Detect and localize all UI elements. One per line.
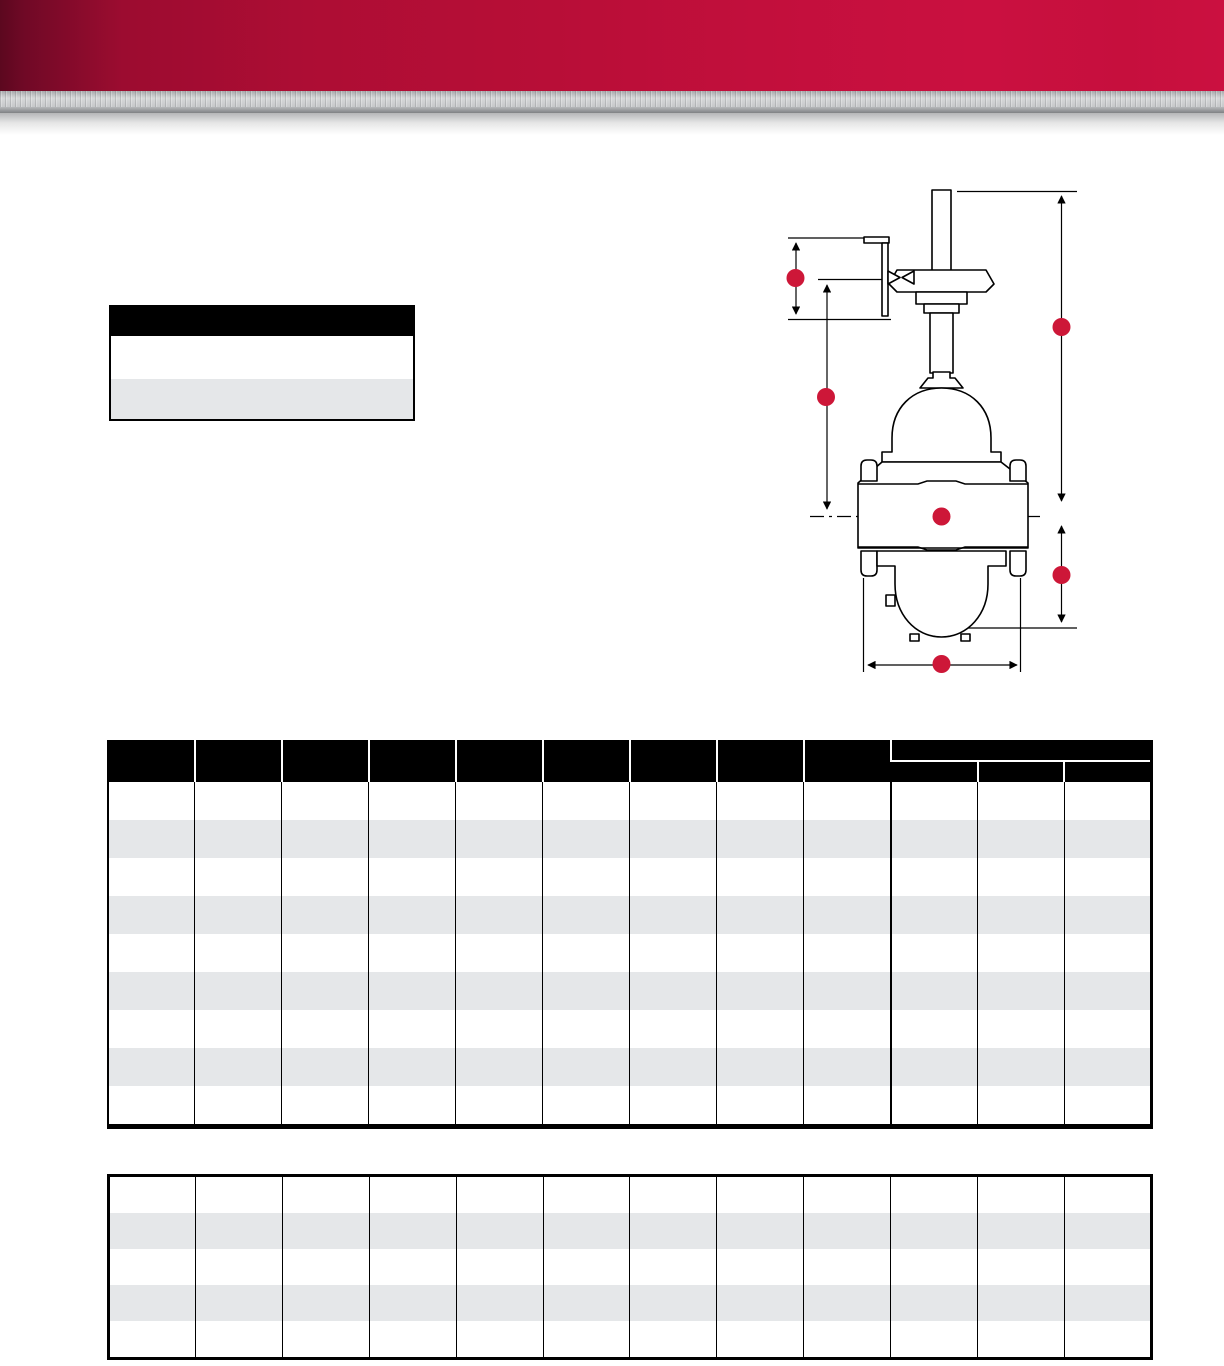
- table-cell: [630, 1048, 717, 1086]
- table-cell: [195, 1321, 282, 1359]
- table-cell: [195, 972, 282, 1010]
- table-cell: [195, 1010, 282, 1048]
- table-cell: [630, 1086, 717, 1127]
- table-cell: [891, 820, 978, 858]
- table-cell: [195, 782, 282, 820]
- table-cell: [978, 1321, 1065, 1359]
- table-cell: [456, 1176, 543, 1214]
- table-cell: [543, 1321, 630, 1359]
- dimension-callout-marker: [933, 508, 951, 526]
- table-cell: [717, 972, 804, 1010]
- table-cell: [195, 934, 282, 972]
- table-row: [108, 1010, 1152, 1048]
- table-cell: [282, 1249, 369, 1285]
- valve-dimension-diagram: [760, 180, 1090, 690]
- table-cell: [369, 1176, 456, 1214]
- table-cell: [543, 1086, 630, 1127]
- table-cell: [369, 934, 456, 972]
- table-cell: [630, 1010, 717, 1048]
- table-cell: [630, 934, 717, 972]
- dimension-callout-marker: [787, 269, 805, 287]
- table-cell: [543, 858, 630, 896]
- column-header: [630, 740, 717, 782]
- table-cell: [456, 972, 543, 1010]
- table-cell: [891, 972, 978, 1010]
- dimension-callout-marker: [817, 388, 835, 406]
- table-cell: [543, 820, 630, 858]
- table-cell: [804, 1010, 891, 1048]
- table-cell: [195, 1213, 282, 1249]
- table-cell: [804, 1213, 891, 1249]
- table-cell: [1064, 820, 1151, 858]
- column-header: [195, 740, 282, 782]
- table-cell: [109, 1213, 196, 1249]
- table-cell: [804, 1086, 891, 1127]
- table-cell: [717, 1048, 804, 1086]
- table-cell: [804, 934, 891, 972]
- table-cell: [717, 934, 804, 972]
- table-cell: [282, 1086, 369, 1127]
- column-header: [717, 740, 804, 782]
- dimension-callout-marker: [1053, 566, 1071, 584]
- sub-column-header: [891, 761, 978, 782]
- table-cell: [108, 934, 195, 972]
- table-cell: [978, 1249, 1065, 1285]
- table-cell: [369, 1048, 456, 1086]
- table-row: [108, 934, 1152, 972]
- table-cell: [543, 934, 630, 972]
- table-cell: [543, 1285, 630, 1321]
- table-cell: [282, 858, 369, 896]
- table-cell: [282, 1048, 369, 1086]
- table-cell: [978, 1086, 1065, 1127]
- table-cell: [369, 858, 456, 896]
- table-cell: [1064, 782, 1151, 820]
- table-cell: [891, 1213, 978, 1249]
- table-cell: [1064, 1086, 1151, 1127]
- dimension-callout-marker: [1053, 318, 1071, 336]
- table-row: [108, 1086, 1152, 1127]
- table-cell: [717, 896, 804, 934]
- catalog-page: [0, 0, 1224, 1366]
- table-cell: [1064, 1249, 1151, 1285]
- table-row: [109, 1285, 1152, 1321]
- table-cell: [978, 858, 1065, 896]
- table-cell: [717, 1010, 804, 1048]
- table-cell: [630, 782, 717, 820]
- table-cell: [543, 896, 630, 934]
- table-cell: [1064, 1213, 1151, 1249]
- table-cell: [109, 1176, 196, 1214]
- data-table: [107, 740, 1153, 1129]
- table-cell: [543, 1213, 630, 1249]
- table-cell: [804, 820, 891, 858]
- column-header: [543, 740, 630, 782]
- table-cell: [804, 1048, 891, 1086]
- table-cell: [630, 1213, 717, 1249]
- table-row: [109, 1249, 1152, 1285]
- table-cell: [282, 896, 369, 934]
- table-cell: [108, 1048, 195, 1086]
- table-cell: [108, 1086, 195, 1127]
- table-cell: [195, 1285, 282, 1321]
- table-cell: [717, 820, 804, 858]
- table-cell: [891, 1321, 978, 1359]
- table-cell: [195, 1249, 282, 1285]
- table-cell: [717, 1086, 804, 1127]
- table-cell: [630, 858, 717, 896]
- table-cell: [195, 1048, 282, 1086]
- table-cell: [891, 858, 978, 896]
- table-row: [108, 972, 1152, 1010]
- table-cell: [891, 1086, 978, 1127]
- table-cell: [717, 1213, 804, 1249]
- dimensions-table: [107, 740, 1153, 1129]
- column-header: [282, 740, 369, 782]
- table-cell: [1064, 1176, 1151, 1214]
- table-cell: [109, 1321, 196, 1359]
- table-cell: [282, 972, 369, 1010]
- table-cell: [630, 1321, 717, 1359]
- table-cell: [456, 1048, 543, 1086]
- table-row: [109, 1176, 1152, 1214]
- table-cell: [195, 896, 282, 934]
- table-cell: [978, 1010, 1065, 1048]
- table-cell: [804, 1249, 891, 1285]
- group-column-header: [891, 740, 1152, 761]
- table-cell: [369, 782, 456, 820]
- table-cell: [978, 896, 1065, 934]
- table-cell: [543, 1010, 630, 1048]
- table-cell: [543, 782, 630, 820]
- table-cell: [109, 1285, 196, 1321]
- table-cell: [978, 972, 1065, 1010]
- table-cell: [369, 820, 456, 858]
- table-cell: [891, 934, 978, 972]
- table-cell: [369, 1285, 456, 1321]
- table-cell: [543, 1048, 630, 1086]
- table-cell: [1064, 1010, 1151, 1048]
- table-cell: [543, 1249, 630, 1285]
- table-cell: [195, 858, 282, 896]
- table-cell: [717, 1321, 804, 1359]
- table-cell: [804, 972, 891, 1010]
- table-cell: [456, 820, 543, 858]
- data-table: [107, 1174, 1153, 1360]
- column-header: [456, 740, 543, 782]
- table-cell: [369, 1249, 456, 1285]
- table-cell: [630, 1176, 717, 1214]
- table-row: [109, 1213, 1152, 1249]
- table-cell: [978, 782, 1065, 820]
- secondary-dimensions-table: [107, 1174, 1153, 1360]
- legend-key-box: [109, 305, 415, 421]
- table-cell: [630, 1249, 717, 1285]
- header-row: [108, 740, 1152, 761]
- table-cell: [195, 820, 282, 858]
- table-row: [108, 1048, 1152, 1086]
- sub-column-header: [1064, 761, 1151, 782]
- table-cell: [978, 1176, 1065, 1214]
- table-cell: [630, 820, 717, 858]
- table-cell: [1064, 858, 1151, 896]
- table-row: [108, 820, 1152, 858]
- table-cell: [717, 1249, 804, 1285]
- metal-strip-fade: [0, 113, 1224, 135]
- table-cell: [369, 896, 456, 934]
- brushed-metal-strip: [0, 91, 1224, 107]
- table-cell: [282, 1213, 369, 1249]
- table-cell: [456, 934, 543, 972]
- table-cell: [456, 1213, 543, 1249]
- table-cell: [717, 1176, 804, 1214]
- table-cell: [1064, 1048, 1151, 1086]
- table-cell: [891, 896, 978, 934]
- legend-row: [111, 336, 413, 379]
- table-cell: [891, 1249, 978, 1285]
- table-cell: [282, 820, 369, 858]
- legend-header: [111, 307, 413, 336]
- table-cell: [804, 858, 891, 896]
- table-cell: [369, 1321, 456, 1359]
- table-cell: [369, 972, 456, 1010]
- table-cell: [282, 1176, 369, 1214]
- table-row: [109, 1321, 1152, 1359]
- table-cell: [108, 782, 195, 820]
- table-cell: [891, 782, 978, 820]
- table-cell: [108, 1010, 195, 1048]
- table-cell: [543, 972, 630, 1010]
- table-cell: [717, 858, 804, 896]
- table-cell: [369, 1086, 456, 1127]
- table-cell: [108, 972, 195, 1010]
- table-cell: [1064, 972, 1151, 1010]
- table-cell: [282, 1321, 369, 1359]
- table-cell: [630, 1285, 717, 1321]
- table-cell: [195, 1176, 282, 1214]
- table-cell: [717, 1285, 804, 1321]
- table-cell: [978, 1048, 1065, 1086]
- table-row: [108, 896, 1152, 934]
- table-cell: [717, 782, 804, 820]
- table-cell: [456, 858, 543, 896]
- table-cell: [282, 782, 369, 820]
- table-cell: [891, 1048, 978, 1086]
- table-cell: [369, 1010, 456, 1048]
- table-cell: [978, 820, 1065, 858]
- table-cell: [978, 934, 1065, 972]
- table-cell: [456, 1010, 543, 1048]
- table-cell: [804, 1176, 891, 1214]
- column-header: [108, 740, 195, 782]
- table-cell: [891, 1285, 978, 1321]
- table-cell: [282, 934, 369, 972]
- table-cell: [1064, 896, 1151, 934]
- table-cell: [891, 1010, 978, 1048]
- column-header: [804, 740, 891, 782]
- table-cell: [804, 1285, 891, 1321]
- table-cell: [195, 1086, 282, 1127]
- table-cell: [891, 1176, 978, 1214]
- table-cell: [1064, 1285, 1151, 1321]
- table-cell: [456, 1086, 543, 1127]
- table-cell: [282, 1285, 369, 1321]
- table-cell: [456, 1285, 543, 1321]
- table-cell: [282, 1010, 369, 1048]
- table-cell: [456, 782, 543, 820]
- table-cell: [978, 1285, 1065, 1321]
- table-cell: [543, 1176, 630, 1214]
- table-cell: [978, 1213, 1065, 1249]
- table-cell: [369, 1213, 456, 1249]
- sub-column-header: [978, 761, 1065, 782]
- table-cell: [804, 1321, 891, 1359]
- table-cell: [108, 820, 195, 858]
- travel-indicator-bracket: [864, 237, 914, 316]
- table-row: [108, 782, 1152, 820]
- table-cell: [1064, 934, 1151, 972]
- column-header: [369, 740, 456, 782]
- table-cell: [456, 1249, 543, 1285]
- table-cell: [630, 896, 717, 934]
- page-banner: [0, 0, 1224, 91]
- table-cell: [108, 858, 195, 896]
- table-cell: [1064, 1321, 1151, 1359]
- table-cell: [630, 972, 717, 1010]
- table-cell: [804, 782, 891, 820]
- table-cell: [456, 1321, 543, 1359]
- table-cell: [804, 896, 891, 934]
- table-row: [108, 858, 1152, 896]
- table-cell: [456, 896, 543, 934]
- dimension-callout-marker: [933, 655, 951, 673]
- table-cell: [108, 896, 195, 934]
- table-cell: [109, 1249, 196, 1285]
- legend-row: [111, 379, 413, 419]
